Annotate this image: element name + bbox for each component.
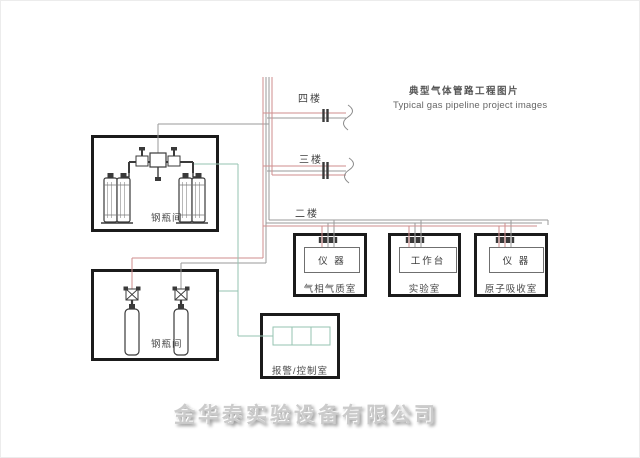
cylinder-room-top-label: 钢瓶间 — [151, 210, 183, 224]
workbench-box-label: 工作台 — [411, 253, 446, 267]
instrument-box-2: 仪 器 — [489, 247, 544, 273]
pipeline-schematic-svg — [1, 1, 640, 458]
instrument-box-1: 仪 器 — [304, 247, 360, 273]
instrument-box-1-label: 仪 器 — [318, 253, 346, 267]
workbench-box: 工作台 — [399, 247, 457, 273]
title-chinese: 典型气体管路工程图片 — [409, 83, 547, 97]
aas-room-label: 原子吸收室 — [474, 281, 548, 295]
floor-label-2f: 二楼 — [295, 205, 319, 220]
floor-label-3f: 三楼 — [299, 151, 323, 166]
instrument-box-2-label: 仪 器 — [503, 253, 531, 267]
gc-ms-room-label: 气相气质室 — [293, 281, 367, 295]
diagram-canvas: 仪 器 工作台 仪 器 — [0, 0, 640, 458]
title-block: 典型气体管路工程图片 Typical gas pipeline project … — [393, 83, 547, 111]
lab-room-label: 实验室 — [388, 281, 461, 295]
title-english: Typical gas pipeline project images — [393, 100, 547, 111]
company-watermark: 金华泰实验设备有限公司 — [151, 399, 461, 429]
floor-label-4f: 四楼 — [298, 90, 322, 105]
alarm-control-room-label: 报警/控制室 — [260, 363, 340, 377]
cylinder-room-bottom-label: 钢瓶间 — [151, 336, 183, 350]
